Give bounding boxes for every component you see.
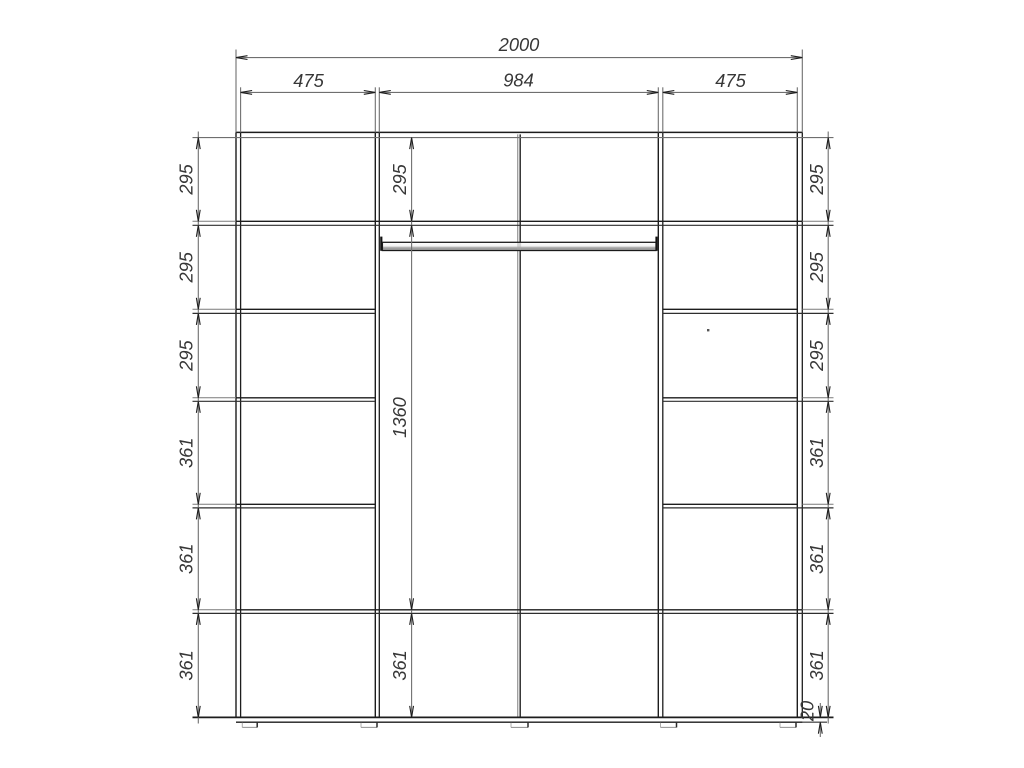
svg-text:295: 295 <box>176 340 197 372</box>
svg-text:361: 361 <box>806 544 827 575</box>
svg-text:475: 475 <box>293 70 324 91</box>
svg-text:20: 20 <box>797 700 818 722</box>
svg-text:361: 361 <box>176 650 197 681</box>
svg-text:361: 361 <box>806 650 827 681</box>
svg-text:2000: 2000 <box>498 34 541 55</box>
svg-text:295: 295 <box>389 163 410 195</box>
svg-text:295: 295 <box>806 251 827 283</box>
svg-text:361: 361 <box>176 438 197 469</box>
svg-text:295: 295 <box>806 163 827 195</box>
svg-text:984: 984 <box>503 70 534 91</box>
svg-text:295: 295 <box>176 163 197 195</box>
svg-text:475: 475 <box>715 70 746 91</box>
svg-text:1360: 1360 <box>389 396 410 438</box>
svg-text:295: 295 <box>806 340 827 372</box>
svg-text:361: 361 <box>389 650 410 681</box>
svg-text:295: 295 <box>176 251 197 283</box>
svg-text:361: 361 <box>176 544 197 575</box>
svg-text:361: 361 <box>806 438 827 469</box>
